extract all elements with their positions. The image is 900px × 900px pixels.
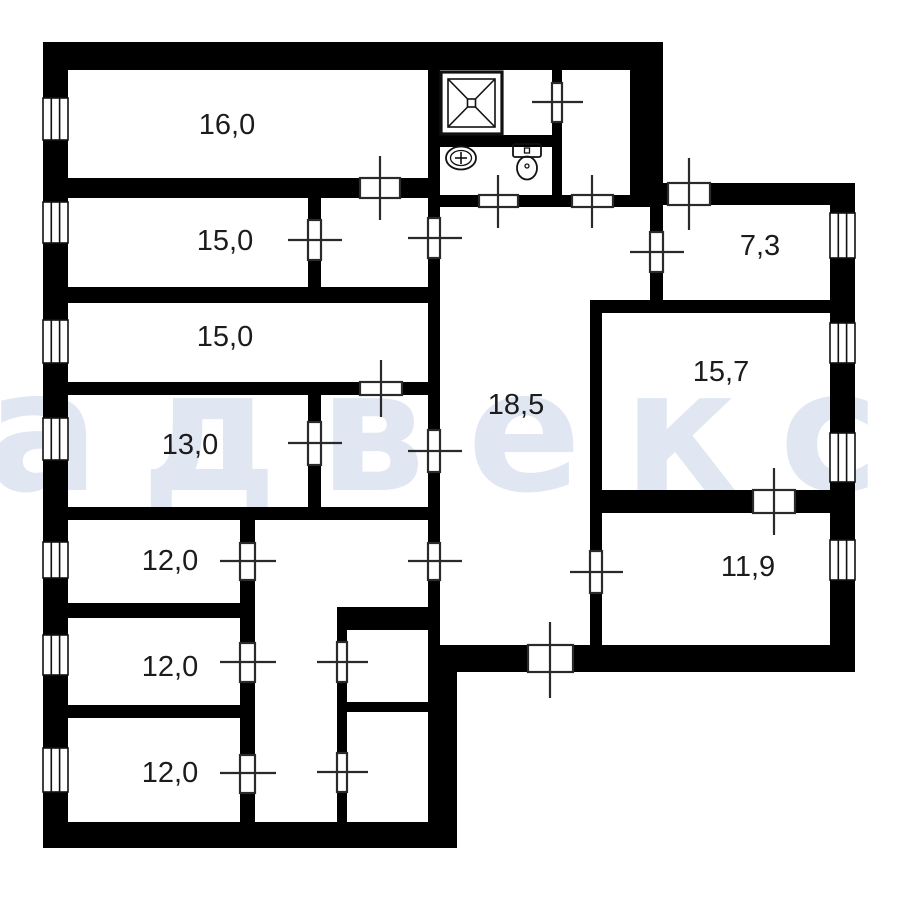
door <box>317 753 368 792</box>
floorplan-svg: адвекс <box>0 0 900 900</box>
wall-segment <box>630 42 663 205</box>
room-label-13-0: 13,0 <box>162 429 218 461</box>
wall-segment <box>43 822 457 848</box>
window <box>830 540 855 580</box>
room-label-12-0-a: 12,0 <box>142 545 198 577</box>
window <box>43 202 68 243</box>
wall-segment <box>337 630 347 642</box>
wall-segment <box>590 300 830 313</box>
room-label-12-0-b: 12,0 <box>142 651 198 683</box>
window <box>43 320 68 363</box>
window <box>43 98 68 140</box>
window <box>43 748 68 792</box>
wall-segment <box>337 682 347 753</box>
wall-segment <box>43 42 663 70</box>
door <box>220 755 276 793</box>
wall-segment <box>602 490 753 513</box>
wall-segment <box>552 122 562 195</box>
wall-segment <box>428 580 440 645</box>
room-label-18-5: 18,5 <box>488 389 544 421</box>
wall-segment <box>400 178 428 198</box>
door <box>220 543 276 580</box>
wall-segment <box>428 472 440 543</box>
door <box>570 551 623 593</box>
door <box>630 232 684 272</box>
wall-segment <box>650 272 663 303</box>
wall-segment <box>428 135 552 147</box>
door <box>408 218 462 258</box>
wall-segment <box>68 507 440 520</box>
wall-segment <box>68 382 360 395</box>
wall-segment <box>240 520 255 543</box>
washbasin-icon <box>446 147 476 170</box>
wall-segment <box>590 300 602 551</box>
wall-segment <box>552 42 562 83</box>
wall-segment <box>308 260 321 287</box>
wall-segment <box>440 195 479 207</box>
wall-segment <box>347 702 428 712</box>
shower-tray-icon <box>441 72 502 134</box>
window <box>43 635 68 675</box>
wall-segment <box>308 395 321 422</box>
wall-segment <box>68 178 360 198</box>
wall-segment <box>68 603 255 618</box>
door <box>360 156 400 220</box>
wall-segment <box>308 465 321 507</box>
door <box>408 543 462 580</box>
room-label-12-0-c: 12,0 <box>142 757 198 789</box>
door <box>317 642 368 682</box>
wall-segment <box>240 682 255 755</box>
wall-segment <box>650 205 663 232</box>
door <box>220 643 276 682</box>
wall-segment <box>428 645 457 848</box>
room-label-7-3: 7,3 <box>740 230 780 262</box>
room-label-15-7: 15,7 <box>693 356 749 388</box>
wall-segment <box>590 593 602 645</box>
wall-segment <box>573 645 855 672</box>
wall-segment <box>337 607 440 630</box>
room-label-16-0: 16,0 <box>199 109 255 141</box>
floorplan-canvas: адвекс <box>0 0 900 900</box>
window <box>830 433 855 482</box>
wall-segment <box>68 705 255 718</box>
door <box>479 175 518 228</box>
window <box>830 323 855 363</box>
door <box>528 622 573 698</box>
door <box>532 83 583 122</box>
toilet-icon <box>513 144 541 180</box>
wall-segment <box>337 792 347 822</box>
wall-segment <box>240 580 255 643</box>
door <box>572 175 613 228</box>
room-label-15-0-b: 15,0 <box>197 321 253 353</box>
fixtures-layer <box>441 72 541 180</box>
door-entrance <box>668 158 710 230</box>
window <box>43 542 68 578</box>
wall-segment <box>428 258 440 430</box>
wall-segment <box>518 195 572 207</box>
wall-segment <box>240 793 255 822</box>
watermark-text: адвекс <box>0 334 900 530</box>
room-label-11-9: 11,9 <box>721 551 775 583</box>
door <box>288 220 342 260</box>
wall-segment <box>795 490 830 513</box>
room-label-15-0-a: 15,0 <box>197 225 253 257</box>
window <box>43 418 68 460</box>
wall-segment <box>68 287 428 303</box>
window <box>830 213 855 258</box>
wall-segment <box>308 198 321 220</box>
